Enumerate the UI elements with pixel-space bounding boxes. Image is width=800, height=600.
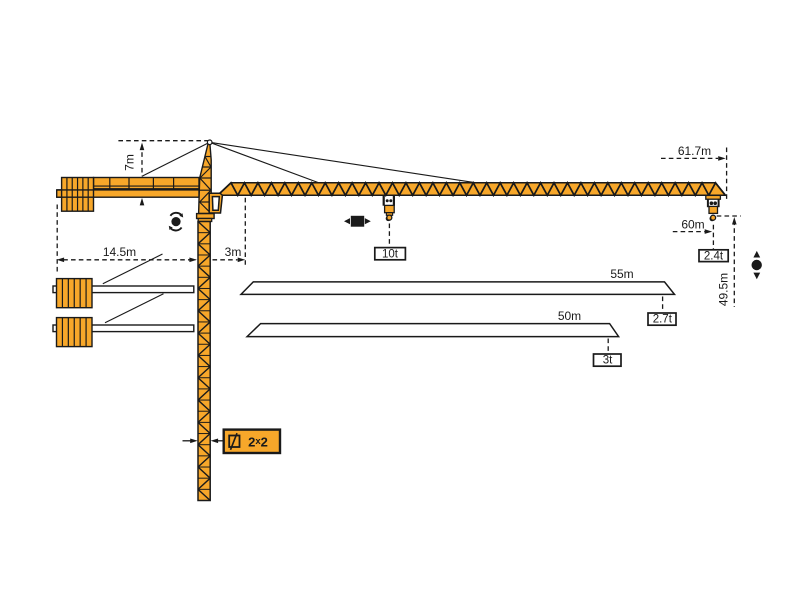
svg-text:3t: 3t (603, 355, 613, 367)
svg-text:2.7t: 2.7t (653, 314, 673, 326)
svg-text:2.4t: 2.4t (704, 250, 724, 262)
svg-text:10t: 10t (382, 248, 399, 260)
svg-text:3m: 3m (225, 245, 242, 259)
svg-text:7m: 7m (123, 154, 137, 171)
svg-text:14.5m: 14.5m (103, 245, 136, 259)
svg-text:49.5m: 49.5m (717, 273, 731, 306)
svg-text:55m: 55m (610, 267, 633, 281)
svg-text:60m: 60m (681, 217, 704, 231)
svg-text:50m: 50m (558, 309, 581, 323)
svg-text:61.7m: 61.7m (678, 144, 711, 158)
